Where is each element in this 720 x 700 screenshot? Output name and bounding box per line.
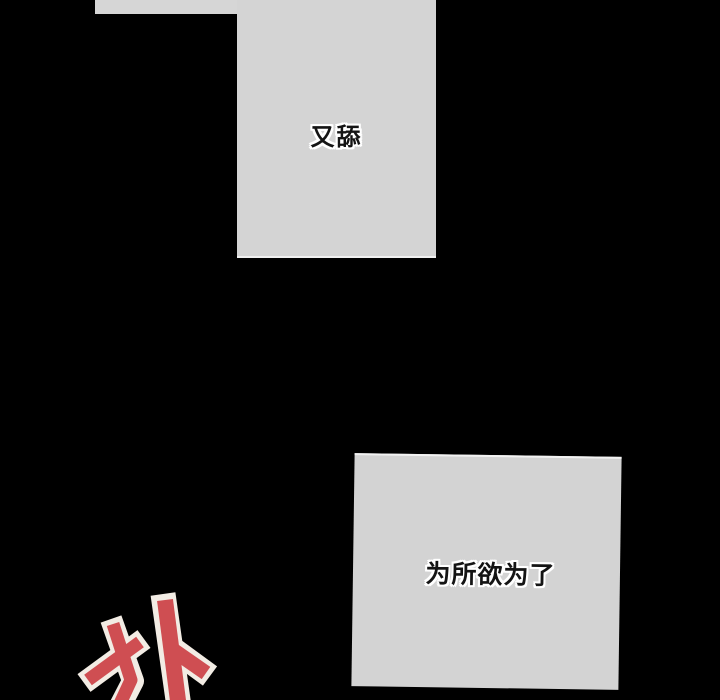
sfx-pu <box>60 580 220 700</box>
comic-page: 又舔 为所欲为了 <box>0 0 720 700</box>
speech-panel-top: 又舔 <box>237 0 436 258</box>
dialogue-text-bottom: 为所欲为了 <box>425 554 556 592</box>
dialogue-text-top: 又舔 <box>311 117 363 152</box>
speech-panel-bottom: 为所欲为了 <box>351 453 621 690</box>
sfx-outline-strokes <box>84 594 210 700</box>
panel-connector-tab <box>95 0 240 14</box>
